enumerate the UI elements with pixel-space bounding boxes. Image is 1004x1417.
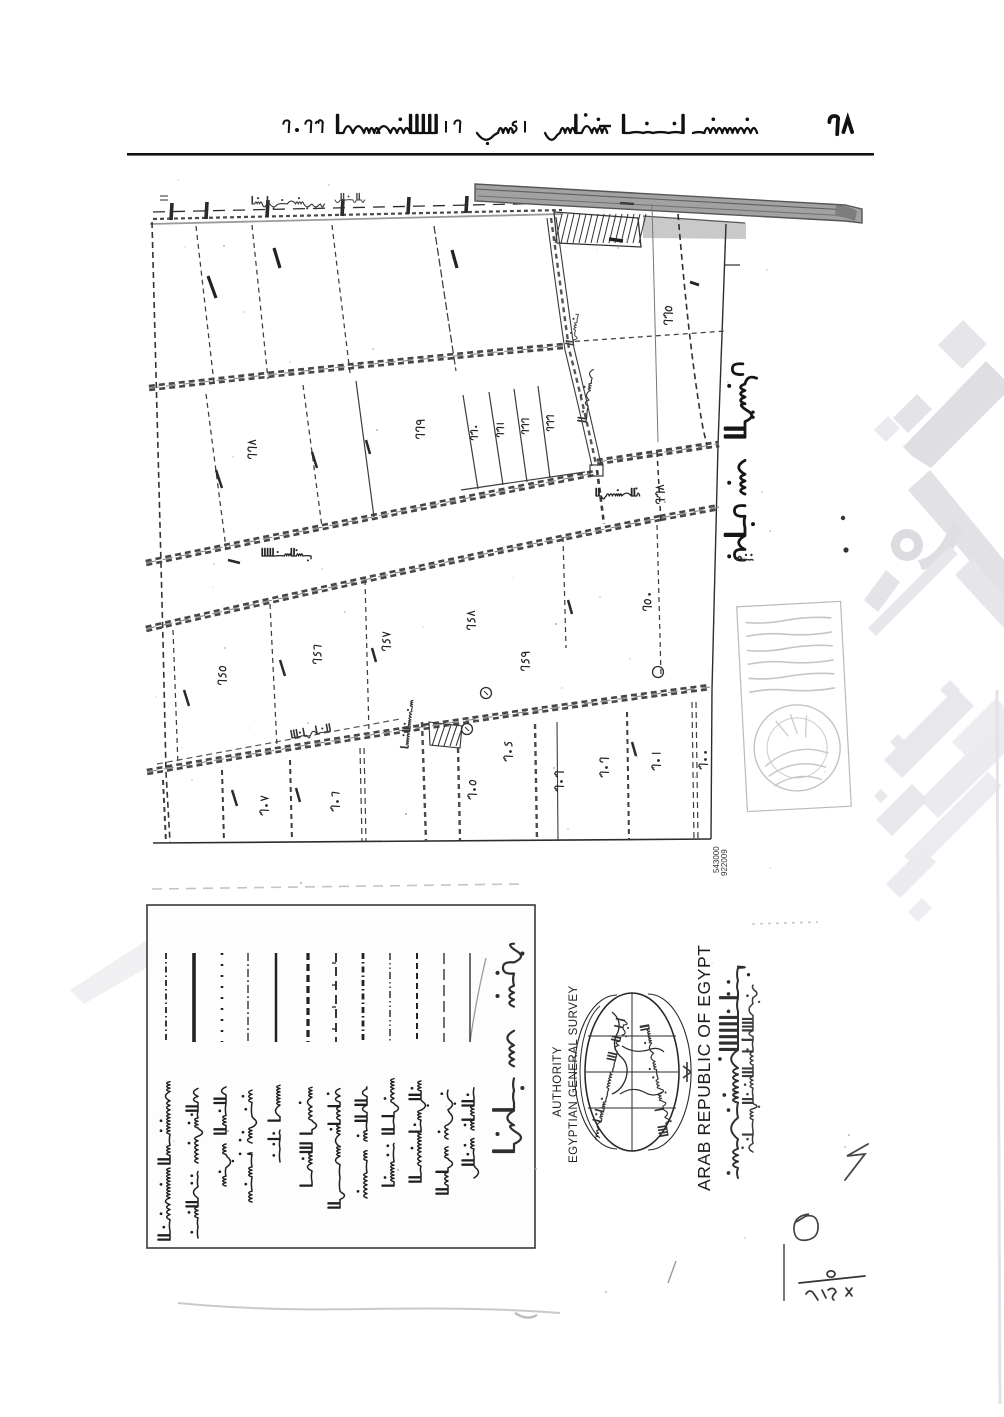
svg-text:AUTHORITY: AUTHORITY <box>552 1046 564 1117</box>
svg-text:922009: 922009 <box>720 849 729 876</box>
svg-text:ARAB REPUBLIC OF EGYPT: ARAB REPUBLIC OF EGYPT <box>694 944 714 1191</box>
